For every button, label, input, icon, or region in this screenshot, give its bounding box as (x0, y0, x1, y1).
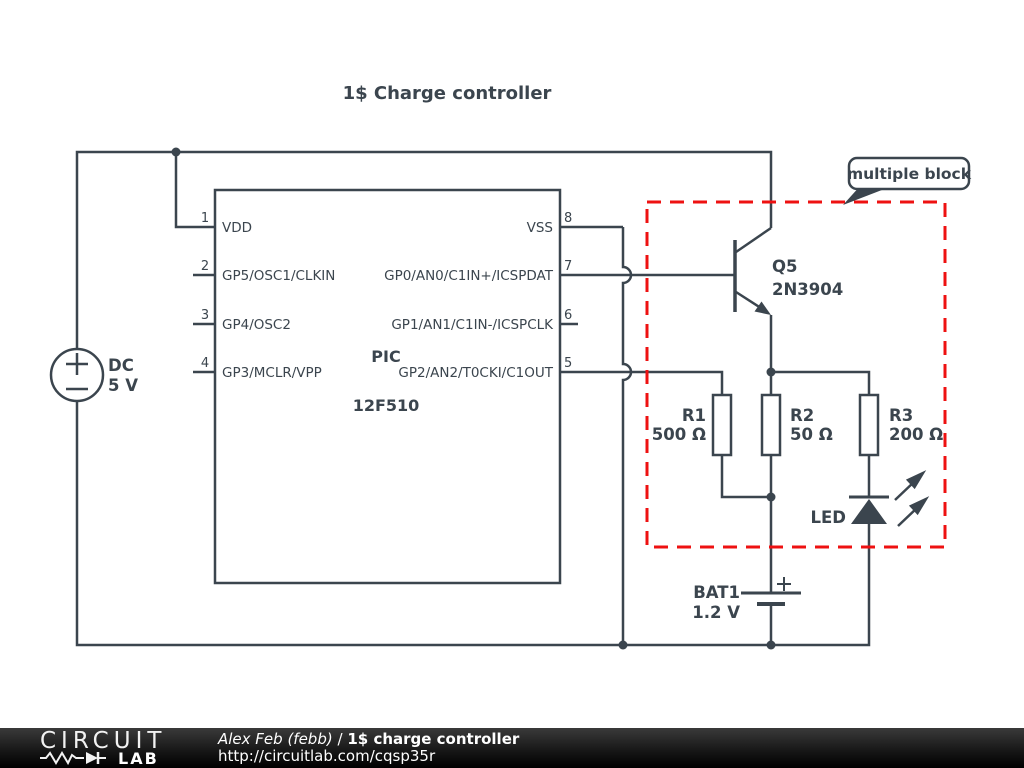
resistor-body (762, 395, 780, 455)
ic-body (215, 190, 560, 583)
battery-plus-icon (777, 577, 791, 591)
pin-label-gp4: GP4/OSC2 (222, 317, 291, 333)
battery-bat1[interactable]: BAT1 1.2 V (692, 577, 801, 622)
pin-label-vss: VSS (527, 220, 553, 236)
pin-label-gp1: GP1/AN1/C1IN-/ICSPCLK (391, 317, 554, 333)
transistor-q5[interactable]: Q5 2N3904 (735, 228, 843, 315)
junction-dot (767, 368, 776, 377)
dc-voltage-source[interactable]: DC 5 V (51, 349, 138, 401)
wire-r1-bottom (722, 455, 771, 497)
pin-number-5: 5 (564, 356, 572, 371)
pin-number-4: 4 (201, 356, 209, 371)
pin-number-3: 3 (201, 308, 209, 323)
circuit-title: 1$ Charge controller (343, 83, 552, 104)
source-value: 5 V (108, 376, 138, 395)
pin-label-gp0: GP0/AN0/C1IN+/ICSPDAT (384, 268, 554, 284)
battery-name: BAT1 (693, 583, 740, 602)
pin-number-1: 1 (201, 211, 209, 226)
wire-pin1 (176, 152, 215, 227)
resistor-r1[interactable]: R1 500 Ω (652, 395, 731, 455)
footer-credits: Alex Feb (febb) / 1$ charge controller h… (218, 731, 519, 765)
resistor-r2[interactable]: R2 50 Ω (762, 395, 833, 455)
pin-label-gp3: GP3/MCLR/VPP (222, 365, 322, 381)
circuitlab-logo: CIRCUIT LAB (40, 731, 170, 766)
resistor-value: 50 Ω (790, 425, 833, 444)
resistor-body (713, 395, 731, 455)
credit-separator: / (338, 730, 343, 748)
battery-value: 1.2 V (692, 603, 740, 622)
junction-dot (172, 148, 181, 157)
callout-label: multiple block (847, 165, 972, 183)
schematic-url: http://circuitlab.com/cqsp35r (218, 748, 519, 765)
transistor-collector (736, 228, 771, 252)
junction-dot (767, 493, 776, 502)
resistor-body (860, 395, 878, 455)
pin-number-7: 7 (564, 259, 572, 274)
circuitlab-schematic-page: 1$ Charge controller (0, 0, 1024, 768)
source-name: DC (108, 356, 134, 375)
project-title: 1$ charge controller (347, 730, 519, 748)
junction-dot (767, 641, 776, 650)
pic-ic[interactable]: PIC 12F510 1 2 3 4 8 7 6 5 VDD GP5/OSC1/… (201, 190, 572, 583)
wire-node-r3 (771, 372, 869, 395)
transistor-part: 2N3904 (772, 280, 843, 299)
resistor-name: R1 (682, 406, 706, 425)
led-triangle (851, 499, 887, 524)
author-name: Alex Feb (febb) (218, 730, 333, 748)
resistor-value: 200 Ω (889, 425, 943, 444)
schematic-canvas: 1$ Charge controller (0, 0, 1024, 728)
led-label: LED (811, 508, 846, 527)
resistor-diode-icon (40, 750, 120, 766)
pin-label-gp2: GP2/AN2/T0CKI/C1OUT (398, 365, 553, 381)
resistor-name: R2 (790, 406, 814, 425)
transistor-name: Q5 (772, 257, 798, 276)
pin-label-vdd: VDD (222, 220, 252, 236)
wire-vss-vertical (623, 227, 631, 645)
circuitlab-footer: CIRCUIT LAB Alex Feb (febb) / 1$ charge … (0, 728, 1024, 768)
pin-label-gp5: GP5/OSC1/CLKIN (222, 268, 335, 284)
logo-text-lab: LAB (118, 749, 159, 768)
multiple-block-callout[interactable]: multiple block (843, 158, 972, 205)
pin-number-2: 2 (201, 259, 209, 274)
credit-line: Alex Feb (febb) / 1$ charge controller (218, 731, 519, 748)
ic-name-line1: PIC (371, 347, 400, 366)
junction-dot (619, 641, 628, 650)
led-light-arrows-icon (895, 473, 926, 526)
ic-name-line2: 12F510 (353, 396, 420, 415)
wire-pin5-r1 (560, 372, 722, 395)
emitter-arrow-icon (755, 302, 772, 316)
resistor-name: R3 (889, 406, 913, 425)
resistor-r3[interactable]: R3 200 Ω (860, 395, 943, 455)
resistor-value: 500 Ω (652, 425, 706, 444)
pin-number-6: 6 (564, 308, 572, 323)
pin-number-8: 8 (564, 211, 572, 226)
